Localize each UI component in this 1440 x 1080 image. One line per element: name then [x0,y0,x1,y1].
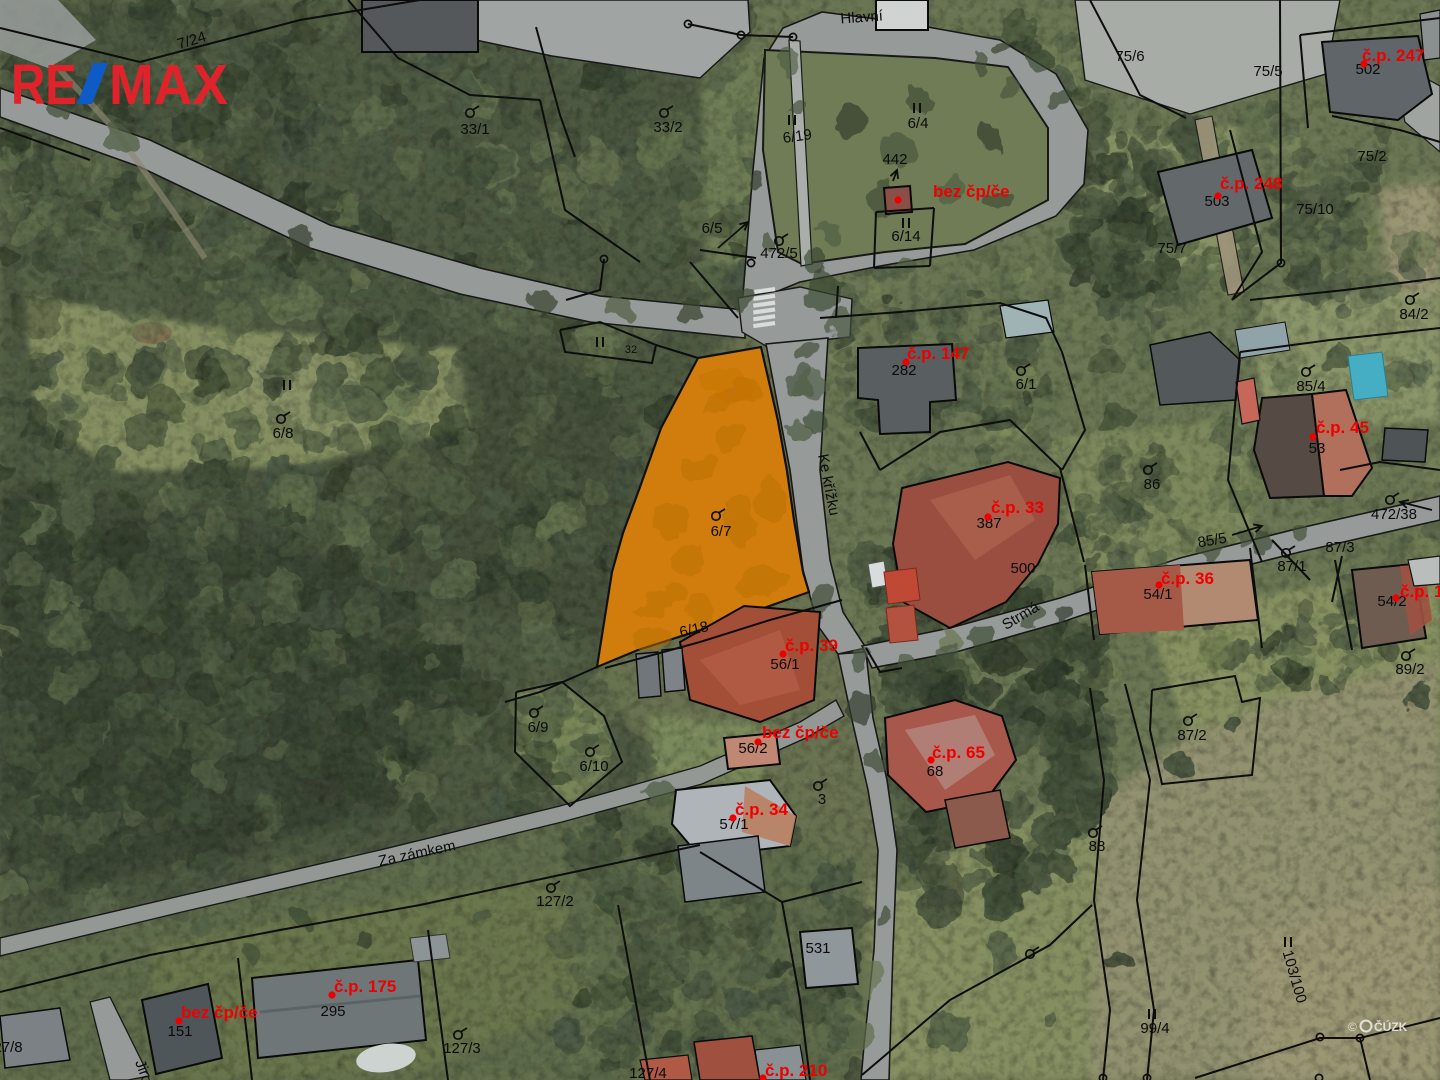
svg-text:27/8: 27/8 [0,1039,23,1056]
svg-text:Hlavní: Hlavní [840,7,884,27]
svg-text:č.p. 13: č.p. 13 [1400,582,1440,601]
svg-text:33/2: 33/2 [653,119,682,136]
svg-text:472/38: 472/38 [1371,506,1417,523]
svg-text:bez čp/če: bez čp/če [762,723,839,742]
svg-text:531: 531 [805,940,830,957]
svg-text:75/6: 75/6 [1115,48,1144,65]
svg-text:127/2: 127/2 [536,893,574,910]
svg-text:č.p. 33: č.p. 33 [991,498,1044,517]
svg-text:75/2: 75/2 [1357,148,1386,165]
svg-text:6/10: 6/10 [579,758,608,775]
svg-text:56/1: 56/1 [770,656,799,673]
svg-text:6/5: 6/5 [702,220,723,237]
svg-text:6/14: 6/14 [891,228,920,245]
svg-text:89/2: 89/2 [1395,661,1424,678]
svg-text:75/7: 75/7 [1157,240,1186,257]
svg-text:6/4: 6/4 [908,115,929,132]
svg-text:86: 86 [1144,476,1161,493]
svg-text:87/2: 87/2 [1177,727,1206,744]
svg-text:127/3: 127/3 [443,1040,481,1057]
svg-text:©: © [1348,1020,1357,1034]
svg-text:č.p. 147: č.p. 147 [907,344,969,363]
svg-text:ČÚZK: ČÚZK [1374,1019,1408,1034]
svg-text:88: 88 [1089,838,1106,855]
svg-text:87/3: 87/3 [1325,539,1354,556]
svg-text:295: 295 [320,1003,345,1020]
svg-text:442: 442 [882,151,907,168]
svg-text:33/1: 33/1 [460,121,489,138]
svg-text:č.p. 45: č.p. 45 [1316,418,1369,437]
svg-text:6/8: 6/8 [273,425,294,442]
svg-text:54/1: 54/1 [1143,586,1172,603]
svg-text:č.p. 65: č.p. 65 [932,743,985,762]
svg-text:87/1: 87/1 [1277,558,1306,575]
svg-text:472/5: 472/5 [760,245,798,262]
svg-text:75/5: 75/5 [1253,63,1282,80]
svg-text:č.p. 39: č.p. 39 [785,636,838,655]
svg-text:99/4: 99/4 [1140,1020,1169,1037]
svg-text:68: 68 [927,763,944,780]
svg-text:RE: RE [11,53,77,117]
svg-text:č.p. 36: č.p. 36 [1161,569,1214,588]
svg-text:3: 3 [818,791,826,808]
svg-text:bez čp/če: bez čp/če [933,182,1010,201]
svg-text:127/4: 127/4 [629,1065,667,1080]
svg-text:53: 53 [1309,440,1326,457]
svg-text:bez čp/če: bez čp/če [181,1003,258,1022]
svg-text:č.p. 34: č.p. 34 [735,800,788,819]
svg-text:75/10: 75/10 [1296,201,1334,218]
svg-text:6/7: 6/7 [711,523,732,540]
svg-text:151: 151 [167,1023,192,1040]
svg-text:500: 500 [1010,560,1035,577]
svg-text:č.p. 247: č.p. 247 [1362,46,1424,65]
svg-text:32: 32 [625,344,637,356]
svg-text:6/9: 6/9 [528,719,549,736]
svg-text:85/4: 85/4 [1296,378,1325,395]
svg-text:MAX: MAX [109,53,228,117]
svg-text:č.p. 210: č.p. 210 [765,1061,827,1080]
svg-text:6/1: 6/1 [1016,376,1037,393]
svg-text:č.p. 248: č.p. 248 [1220,174,1282,193]
svg-text:56/2: 56/2 [738,740,767,757]
svg-text:č.p. 175: č.p. 175 [334,977,396,996]
svg-text:84/2: 84/2 [1399,306,1428,323]
